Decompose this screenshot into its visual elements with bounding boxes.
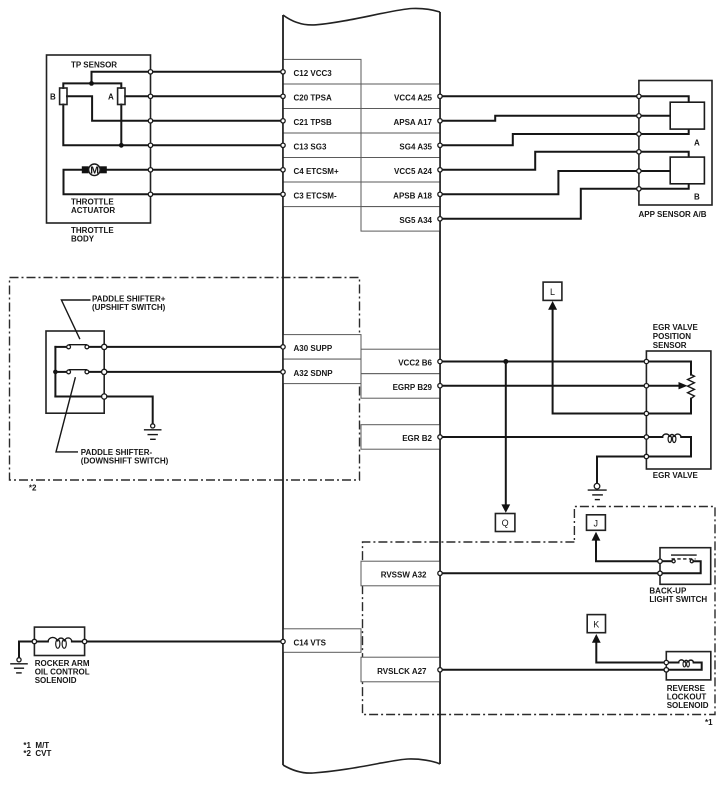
svg-text:SOLENOID: SOLENOID <box>35 676 77 685</box>
svg-text:SENSOR: SENSOR <box>653 341 687 350</box>
svg-text:L: L <box>550 287 555 297</box>
svg-text:SG4 A35: SG4 A35 <box>399 143 432 152</box>
svg-text:Q: Q <box>502 518 509 528</box>
svg-text:C14 VTS: C14 VTS <box>294 639 327 648</box>
svg-text:EGRP B29: EGRP B29 <box>393 383 433 392</box>
svg-text:POSITION: POSITION <box>653 332 691 341</box>
svg-text:*2: *2 <box>29 484 37 493</box>
svg-text:APSB A18: APSB A18 <box>393 192 432 201</box>
svg-text:C3 ETCSM-: C3 ETCSM- <box>294 192 337 201</box>
svg-text:EGR B2: EGR B2 <box>402 434 432 443</box>
svg-text:C13 SG3: C13 SG3 <box>294 143 327 152</box>
svg-text:EGR VALVE: EGR VALVE <box>653 471 699 480</box>
svg-text:RVSLCK A27: RVSLCK A27 <box>377 667 427 676</box>
svg-text:(UPSHIFT SWITCH): (UPSHIFT SWITCH) <box>92 303 166 312</box>
svg-text:A32 SDNP: A32 SDNP <box>294 369 334 378</box>
svg-text:*1: *1 <box>705 718 713 727</box>
svg-text:C21 TPSB: C21 TPSB <box>294 118 332 127</box>
svg-text:SOLENOID: SOLENOID <box>667 701 709 710</box>
svg-text:(DOWNSHIFT SWITCH): (DOWNSHIFT SWITCH) <box>81 456 169 465</box>
svg-text:VCC4 A25: VCC4 A25 <box>394 94 432 103</box>
svg-text:A30 SUPP: A30 SUPP <box>294 344 333 353</box>
svg-text:K: K <box>593 619 599 629</box>
svg-text:VCC2 B6: VCC2 B6 <box>398 359 432 368</box>
svg-text:*2 CVT: *2 CVT <box>23 749 51 758</box>
svg-text:C4 ETCSM+: C4 ETCSM+ <box>294 167 339 176</box>
svg-text:J: J <box>594 518 599 528</box>
svg-text:EGR VALVE: EGR VALVE <box>653 323 699 332</box>
svg-text:A: A <box>108 92 114 101</box>
svg-text:C20 TPSA: C20 TPSA <box>294 94 332 103</box>
svg-text:TP SENSOR: TP SENSOR <box>71 61 117 70</box>
svg-text:APP SENSOR A/B: APP SENSOR A/B <box>639 210 707 219</box>
svg-text:A: A <box>694 139 700 148</box>
svg-text:BODY: BODY <box>71 235 95 244</box>
svg-text:C12 VCC3: C12 VCC3 <box>294 69 333 78</box>
svg-text:PADDLE SHIFTER+: PADDLE SHIFTER+ <box>92 294 166 303</box>
svg-text:APSA A17: APSA A17 <box>393 118 432 127</box>
svg-text:B: B <box>694 193 700 202</box>
svg-text:VCC5 A24: VCC5 A24 <box>394 167 432 176</box>
svg-text:RVSSW A32: RVSSW A32 <box>381 571 427 580</box>
svg-text:ACTUATOR: ACTUATOR <box>71 206 115 215</box>
svg-text:B: B <box>50 92 56 101</box>
svg-text:SG5 A34: SG5 A34 <box>399 216 432 225</box>
svg-text:M: M <box>90 165 99 177</box>
svg-text:LIGHT SWITCH: LIGHT SWITCH <box>649 595 707 604</box>
